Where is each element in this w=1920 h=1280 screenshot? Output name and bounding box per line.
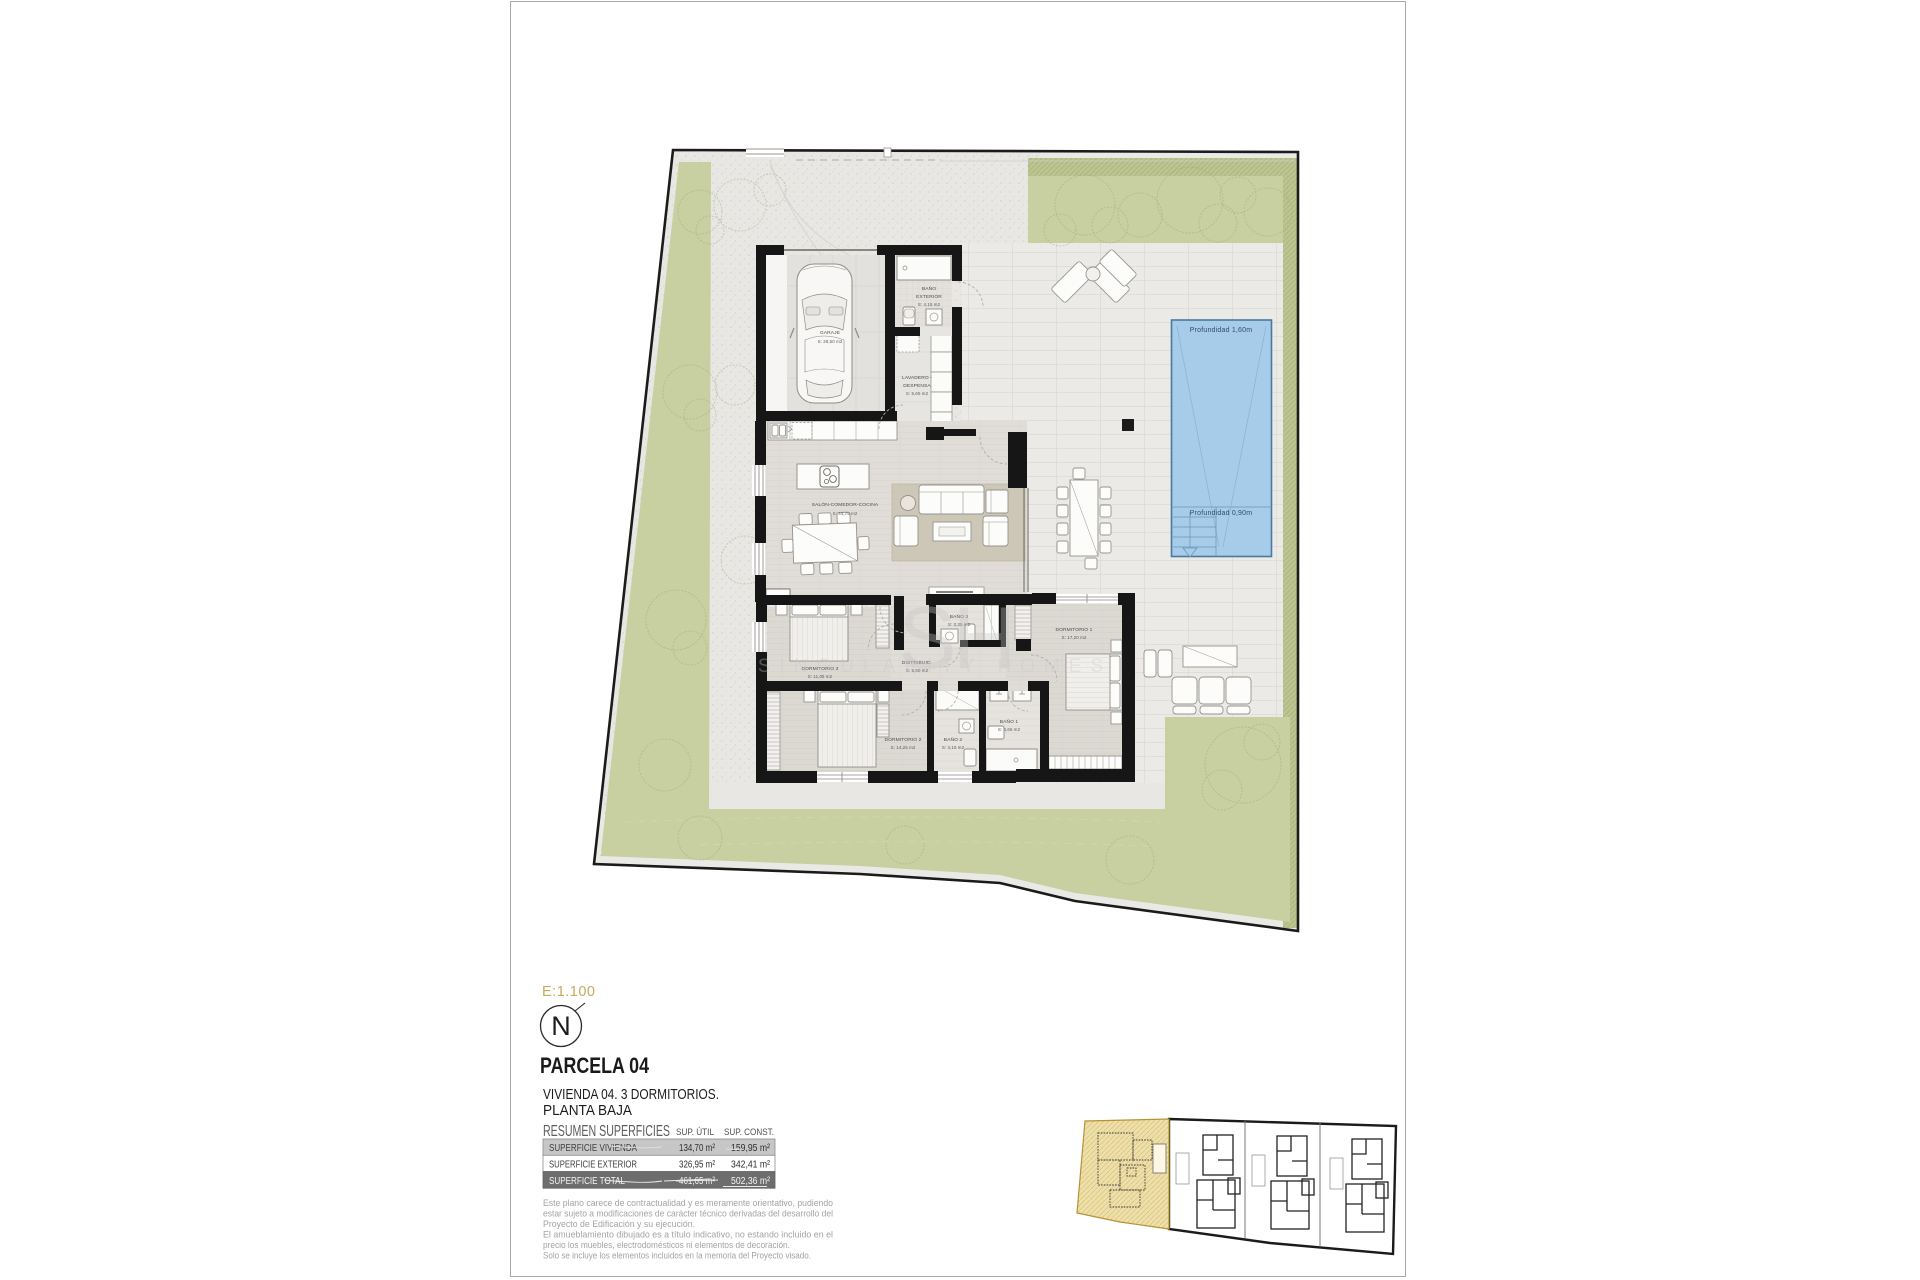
svg-text:PARCELA 04: PARCELA 04 [540, 1053, 649, 1078]
svg-text:VIVIENDA 04. 3 DORMITORIOS.: VIVIENDA 04. 3 DORMITORIOS. [543, 1086, 719, 1103]
svg-text:Profundidad 1,60m: Profundidad 1,60m [1190, 327, 1253, 334]
svg-text:159,95 m²: 159,95 m² [731, 1143, 771, 1154]
svg-text:S: 44,75 m2: S: 44,75 m2 [833, 511, 858, 516]
svg-text:342,41 m²: 342,41 m² [731, 1159, 771, 1170]
svg-text:SUPERFICIE VIVIENDA: SUPERFICIE VIVIENDA [549, 1143, 637, 1154]
svg-text:BAÑO: BAÑO [922, 285, 936, 292]
svg-text:El amueblamiento dibujado es a: El amueblamiento dibujado es a título in… [543, 1230, 833, 1240]
svg-text:precio los muebles, electrodom: precio los muebles, electrodomésticos ni… [543, 1240, 790, 1250]
svg-text:Este plano carece de contractu: Este plano carece de contractualidad y e… [543, 1198, 833, 1208]
svg-text:DORMITORIO 2: DORMITORIO 2 [885, 737, 922, 743]
svg-text:SUP. CONST.: SUP. CONST. [724, 1127, 774, 1138]
svg-text:estar sujeto a modificaciones: estar sujeto a modificaciones de carácte… [543, 1209, 833, 1219]
svg-text:Proyecto de Edificación y su e: Proyecto de Edificación y su ejecución. [543, 1219, 695, 1229]
svg-text:GARAJE: GARAJE [820, 330, 841, 336]
svg-text:E:1.100: E:1.100 [542, 984, 596, 1000]
svg-text:S: 28,50 m2: S: 28,50 m2 [818, 339, 843, 344]
svg-text:SALÓN-COMEDOR-COCINA: SALÓN-COMEDOR-COCINA [812, 501, 879, 508]
svg-text:DESPENSA: DESPENSA [903, 383, 931, 389]
svg-text:502,36 m²: 502,36 m² [731, 1176, 771, 1187]
svg-text:DORMITORIO 1: DORMITORIO 1 [1056, 627, 1093, 633]
svg-text:EXTERIOR: EXTERIOR [916, 294, 942, 300]
svg-text:326,95 m²: 326,95 m² [679, 1159, 716, 1170]
svg-text:134,70 m²: 134,70 m² [679, 1143, 716, 1154]
svg-text:S: 4,65 m2: S: 4,65 m2 [998, 727, 1021, 732]
svg-text:PLANTA BAJA: PLANTA BAJA [543, 1102, 632, 1119]
svg-text:S: 5,65 m2: S: 5,65 m2 [906, 391, 929, 396]
svg-text:S: 14,25 m2: S: 14,25 m2 [891, 745, 916, 750]
svg-text:S: 4,15 m2: S: 4,15 m2 [942, 745, 965, 750]
svg-text:S: 17,20 m2: S: 17,20 m2 [1062, 635, 1087, 640]
svg-text:SUPERFICIE EXTERIOR: SUPERFICIE EXTERIOR [549, 1159, 637, 1170]
svg-text:Profundidad 0,90m: Profundidad 0,90m [1190, 510, 1253, 517]
svg-text:461,65 m²: 461,65 m² [679, 1176, 716, 1187]
svg-text:BAÑO 1: BAÑO 1 [1000, 718, 1019, 725]
svg-text:Solo se incluye los elementos: Solo se incluye los elementos incluidos … [543, 1251, 811, 1261]
svg-text:N: N [551, 1011, 571, 1041]
svg-text:SINGULARITY HOMES: SINGULARITY HOMES [758, 656, 1112, 677]
svg-text:LAVADERO -: LAVADERO - [902, 375, 932, 381]
svg-text:SUP. ÚTIL: SUP. ÚTIL [676, 1127, 714, 1138]
svg-text:RESUMEN SUPERFICIES: RESUMEN SUPERFICIES [543, 1123, 670, 1140]
svg-text:S: 4,15 m2: S: 4,15 m2 [918, 302, 941, 307]
svg-text:SUPERFICIE TOTAL: SUPERFICIE TOTAL [549, 1176, 625, 1187]
svg-text:BAÑO 2: BAÑO 2 [944, 736, 963, 743]
